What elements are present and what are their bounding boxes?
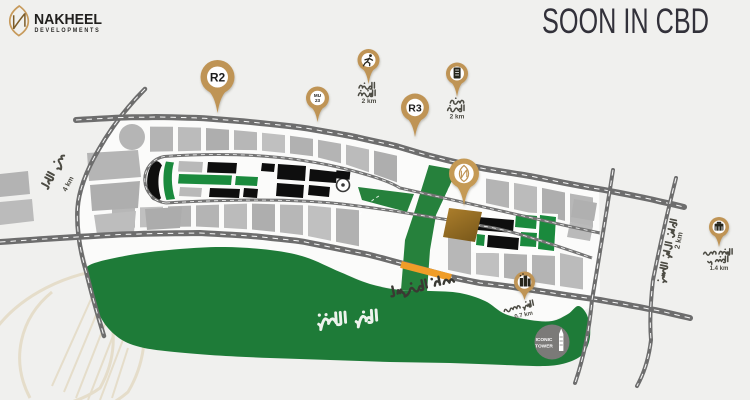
svg-text:R2: R2	[210, 70, 226, 84]
svg-text:ICONIC: ICONIC	[536, 337, 553, 343]
svg-text:DEVELOPMENTS: DEVELOPMENTS	[35, 27, 101, 34]
svg-text:23: 23	[315, 98, 321, 103]
svg-text:1.4 km: 1.4 km	[710, 266, 729, 272]
svg-text:SOON IN CBD: SOON IN CBD	[542, 1, 709, 41]
svg-text:NAKHEEL: NAKHEEL	[34, 11, 102, 28]
svg-text:2 km: 2 km	[450, 114, 465, 121]
svg-text:2 km: 2 km	[362, 98, 377, 105]
svg-text:R3: R3	[408, 102, 422, 114]
svg-text:TOWER: TOWER	[535, 344, 553, 350]
